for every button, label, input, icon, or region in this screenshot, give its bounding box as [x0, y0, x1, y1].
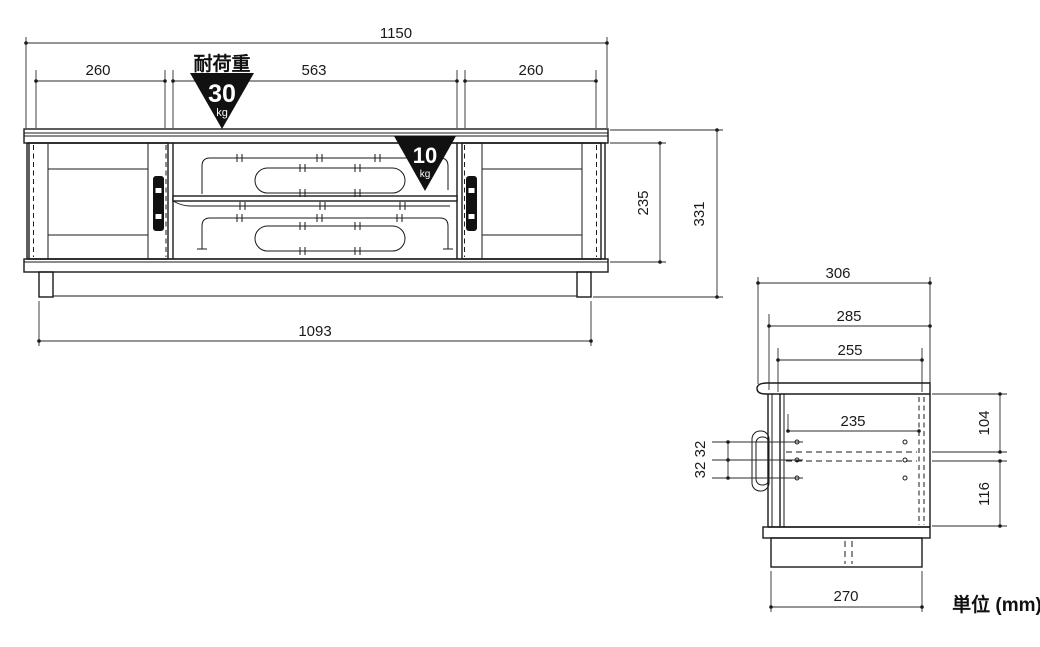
dim-lower-height-label: 116 — [976, 482, 993, 506]
dim-shelf-depth-label: 235 — [840, 413, 865, 430]
shelf-pin-holes — [795, 440, 907, 480]
front-dim-base-width: 1093 — [37, 301, 593, 346]
lower-cable-slot — [255, 226, 405, 251]
load-10-unit: kg — [420, 169, 431, 180]
side-dim-inner-heights: 104 116 — [932, 392, 1007, 528]
furniture-dimension-drawing: 1150 260 563 260 耐荷重 30 kg — [0, 0, 1040, 647]
dim-body-depth-label: 285 — [836, 308, 861, 325]
front-base — [24, 259, 608, 297]
side-dim-shelf-depth: 235 — [786, 413, 921, 433]
unit-note: 単位 (mm) — [952, 593, 1040, 616]
dim-overall-height-label: 331 — [691, 201, 708, 226]
upper-slot-ticks — [300, 164, 360, 197]
lower-slot-ticks — [300, 222, 360, 255]
right-door-handle — [466, 176, 477, 231]
front-view: 1150 260 563 260 耐荷重 30 kg — [24, 25, 723, 346]
dim-center-label: 563 — [301, 62, 326, 79]
load-10-value: 10 — [413, 143, 437, 168]
left-door-handle — [153, 176, 164, 231]
load-capacity-10kg-icon: 10 kg — [394, 136, 456, 191]
dim-inner-depth-label: 255 — [837, 342, 862, 359]
front-dim-sections: 260 563 260 — [34, 62, 598, 128]
drawing-canvas: 1150 260 563 260 耐荷重 30 kg — [0, 0, 1040, 647]
dim-left-door-label: 260 — [85, 62, 110, 79]
front-left-leg — [39, 272, 53, 297]
center-shelf — [173, 196, 457, 201]
front-dim-overall-height: 331 — [593, 128, 723, 299]
dim-overall-depth-label: 306 — [825, 265, 850, 282]
load-30-value: 30 — [208, 80, 236, 108]
side-base — [763, 527, 930, 567]
dim-pitch-upper-label: 32 — [692, 441, 709, 458]
dim-upper-height-label: 104 — [976, 410, 993, 435]
front-dim-inner-height: 235 — [610, 141, 666, 264]
load-capacity-30kg-icon: 30 kg — [190, 73, 254, 129]
dim-right-door-label: 260 — [518, 62, 543, 79]
dim-base-width-label: 1093 — [298, 323, 331, 340]
side-dim-hole-pitch: 32 32 — [692, 440, 803, 480]
upper-cable-slot — [255, 168, 405, 193]
front-top-panel — [24, 129, 608, 143]
load-capacity-label: 耐荷重 — [193, 52, 250, 75]
side-dim-inner-depth: 255 — [776, 342, 924, 392]
side-view: 306 285 255 — [692, 265, 1007, 612]
load-30-unit: kg — [216, 107, 228, 119]
dim-inner-height-label: 235 — [635, 190, 652, 215]
dim-overall-width-label: 1150 — [380, 25, 412, 42]
side-door-handle — [752, 431, 769, 491]
front-left-door — [29, 143, 168, 259]
dim-pitch-lower-label: 32 — [692, 462, 709, 479]
dim-base-depth-label: 270 — [833, 588, 858, 605]
front-right-door — [462, 143, 601, 259]
front-right-leg — [577, 272, 591, 297]
side-top-panel — [757, 383, 930, 394]
side-dim-base-depth: 270 — [769, 571, 924, 612]
